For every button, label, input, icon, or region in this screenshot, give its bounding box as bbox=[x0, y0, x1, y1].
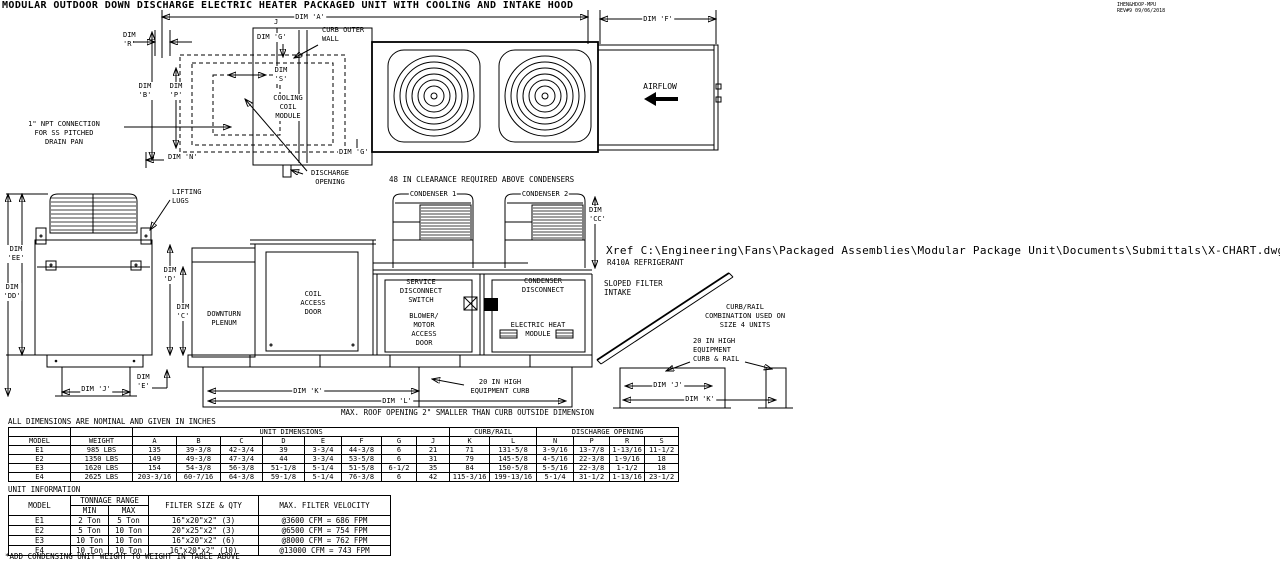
label-dim-n: DIM 'N' bbox=[167, 153, 199, 162]
label-curb-outer-wall: CURB OUTER WALL bbox=[322, 26, 364, 44]
airflow-arrow-icon bbox=[644, 92, 678, 106]
column-header: L bbox=[490, 437, 537, 446]
column-header: D bbox=[263, 437, 305, 446]
label-npt-note: 1" NPT CONNECTION FOR SS PITCHED DRAIN P… bbox=[28, 120, 100, 147]
table-cell: 53-5/8 bbox=[342, 455, 382, 464]
column-header: P bbox=[574, 437, 610, 446]
table-cell: E3 bbox=[9, 464, 71, 473]
table-cell: 21 bbox=[417, 446, 450, 455]
table-row: E31620 LBS15454-3/856-3/851-1/85-1/451-5… bbox=[9, 464, 679, 473]
table-cell: 1-9/16 bbox=[610, 455, 645, 464]
column-header: R bbox=[610, 437, 645, 446]
label-dim-p: DIM 'P' bbox=[169, 82, 184, 100]
column-header: J bbox=[417, 437, 450, 446]
header-filter: FILTER SIZE & QTY bbox=[149, 496, 259, 516]
table-row: E1985 LBS13539-3/842-3/4393-3/444-3/8621… bbox=[9, 446, 679, 455]
label-dim-f: DIM 'F' bbox=[642, 15, 674, 24]
table-cell: 76-3/8 bbox=[342, 473, 382, 482]
table-cell: 31 bbox=[417, 455, 450, 464]
label-dim-g-bottom: DIM 'G' bbox=[338, 148, 370, 157]
label-cooling-coil-module: COOLING COIL MODULE bbox=[272, 94, 304, 121]
label-dim-d: DIM 'D' bbox=[163, 266, 178, 284]
table-cell: 71 bbox=[450, 446, 490, 455]
label-equipment-curb: 20 IN HIGH EQUIPMENT CURB bbox=[470, 378, 529, 396]
table-cell: 154 bbox=[133, 464, 177, 473]
table-cell: 51-5/8 bbox=[342, 464, 382, 473]
group-unit-dimensions: UNIT DIMENSIONS bbox=[133, 428, 450, 437]
column-header: F bbox=[342, 437, 382, 446]
table-cell: 150-5/8 bbox=[490, 464, 537, 473]
label-dim-j-left: DIM 'J' bbox=[80, 385, 112, 394]
table-cell: 10 Ton bbox=[109, 526, 149, 536]
label-dim-j-detail: DIM 'J' bbox=[652, 381, 684, 390]
column-header: K bbox=[450, 437, 490, 446]
condenser-fan-icon bbox=[499, 50, 591, 142]
table-cell: E3 bbox=[9, 536, 71, 546]
table-cell: 5-5/16 bbox=[537, 464, 574, 473]
label-discharge-opening: DISCHARGE OPENING bbox=[311, 169, 349, 187]
doc-revision: REV#9 09/06/2018 bbox=[1117, 9, 1165, 15]
label-dim-ee: DIM 'EE' bbox=[7, 245, 26, 263]
table-cell: 39-3/8 bbox=[177, 446, 221, 455]
table-cell: 51-1/8 bbox=[263, 464, 305, 473]
label-dim-e-left: DIM 'E' bbox=[136, 373, 151, 391]
table-cell: 18 bbox=[645, 455, 679, 464]
column-header: S bbox=[645, 437, 679, 446]
table-cell: 2625 LBS bbox=[71, 473, 133, 482]
label-j-ref: J bbox=[274, 18, 278, 27]
table-cell: E1 bbox=[9, 516, 71, 526]
label-dim-r: DIM 'R' bbox=[123, 31, 136, 49]
table-cell: 135 bbox=[133, 446, 177, 455]
table-cell: 1-13/16 bbox=[610, 473, 645, 482]
dimensions-table: UNIT DIMENSIONS CURB/RAIL DISCHARGE OPEN… bbox=[8, 427, 679, 482]
table-cell: 47-3/4 bbox=[221, 455, 263, 464]
label-sloped-filter: SLOPED FILTER INTAKE bbox=[604, 279, 663, 298]
end-view bbox=[6, 194, 183, 396]
label-condenser-disconnect: CONDENSER DISCONNECT bbox=[522, 277, 564, 295]
table-row: E310 Ton10 Ton16"x20"x2" (6)@8000 CFM = … bbox=[9, 536, 391, 546]
label-dim-l: DIM 'L' bbox=[381, 397, 413, 406]
table-cell: 64-3/8 bbox=[221, 473, 263, 482]
label-dim-cc: DIM 'CC' bbox=[588, 206, 607, 224]
table-cell: @8000 CFM = 762 FPM bbox=[259, 536, 391, 546]
column-header: MODEL bbox=[9, 437, 71, 446]
header-max: MAX bbox=[109, 506, 149, 516]
table-cell: @6500 CFM = 754 FPM bbox=[259, 526, 391, 536]
label-curb-rail: 20 IN HIGH EQUIPMENT CURB & RAIL bbox=[693, 337, 739, 364]
table-cell: 3-9/16 bbox=[537, 446, 574, 455]
unit-info-title: UNIT INFORMATION bbox=[8, 485, 80, 494]
header-model: MODEL bbox=[9, 496, 71, 516]
table-cell: 3-3/4 bbox=[305, 455, 342, 464]
table-row: E12 Ton5 Ton16"x20"x2" (3)@3600 CFM = 68… bbox=[9, 516, 391, 526]
label-lifting-lugs: LIFTING LUGS bbox=[172, 188, 202, 206]
column-header: N bbox=[537, 437, 574, 446]
drawing-title: MODULAR OUTDOOR DOWN DISCHARGE ELECTRIC … bbox=[2, 0, 573, 13]
table-cell: E1 bbox=[9, 446, 71, 455]
table-cell: 11-1/2 bbox=[645, 446, 679, 455]
column-header-row: MODELWEIGHTABCDEFGJKLNPRS bbox=[9, 437, 679, 446]
group-header-row: UNIT DIMENSIONS CURB/RAIL DISCHARGE OPEN… bbox=[9, 428, 679, 437]
table-cell: 54-3/8 bbox=[177, 464, 221, 473]
table-cell: @3600 CFM = 686 FPM bbox=[259, 516, 391, 526]
table-cell: 5 Ton bbox=[71, 526, 109, 536]
label-blower-motor-door: BLOWER/ MOTOR ACCESS DOOR bbox=[409, 312, 439, 348]
label-coil-access-door: COIL ACCESS DOOR bbox=[300, 290, 325, 317]
label-condenser-1: CONDENSER 1 bbox=[409, 190, 457, 199]
table-cell: 79 bbox=[450, 455, 490, 464]
table-cell: 5-1/4 bbox=[305, 464, 342, 473]
table-cell: 16"x20"x2" (3) bbox=[149, 516, 259, 526]
table-cell: E4 bbox=[9, 473, 71, 482]
column-header: C bbox=[221, 437, 263, 446]
group-curb-rail: CURB/RAIL bbox=[450, 428, 537, 437]
unit-info-table: MODEL TONNAGE RANGE FILTER SIZE & QTY MA… bbox=[8, 495, 391, 556]
table-cell: E2 bbox=[9, 526, 71, 536]
table-cell: 49-3/8 bbox=[177, 455, 221, 464]
header-velocity: MAX. FILTER VELOCITY bbox=[259, 496, 391, 516]
xref-path: Xref C:\Engineering\Fans\Packaged Assemb… bbox=[606, 244, 1280, 258]
column-header: G bbox=[382, 437, 417, 446]
footnote: *ADD CONDENSING UNIT WEIGHT TO WEIGHT IN… bbox=[5, 552, 240, 561]
label-dim-dd: DIM 'DD' bbox=[3, 283, 22, 301]
table-cell: 39 bbox=[263, 446, 305, 455]
side-elevation bbox=[188, 194, 733, 407]
column-header: E bbox=[305, 437, 342, 446]
label-dim-a: DIM 'A' bbox=[294, 13, 326, 22]
plan-view bbox=[124, 10, 721, 177]
table-cell: 42 bbox=[417, 473, 450, 482]
table-cell: 985 LBS bbox=[71, 446, 133, 455]
table-cell: 59-1/8 bbox=[263, 473, 305, 482]
label-roof-note: MAX. ROOF OPENING 2" SMALLER THAN CURB O… bbox=[341, 408, 594, 417]
table-cell: 3-3/4 bbox=[305, 446, 342, 455]
table-cell: 56-3/8 bbox=[221, 464, 263, 473]
table-cell: 18 bbox=[645, 464, 679, 473]
table-cell: 131-5/8 bbox=[490, 446, 537, 455]
label-dim-s: DIM 'S' bbox=[274, 66, 289, 84]
table-cell: 23-1/2 bbox=[645, 473, 679, 482]
table-cell: 6 bbox=[382, 455, 417, 464]
table-cell: 199-13/16 bbox=[490, 473, 537, 482]
table-cell: 22-3/8 bbox=[574, 455, 610, 464]
label-refrigerant: R410A REFRIGERANT bbox=[607, 258, 684, 267]
table-cell: 44-3/8 bbox=[342, 446, 382, 455]
column-header: A bbox=[133, 437, 177, 446]
condenser-1-coil bbox=[393, 194, 473, 268]
table-cell: 1350 LBS bbox=[71, 455, 133, 464]
table-cell: 6 bbox=[382, 473, 417, 482]
header-tonnage-range: TONNAGE RANGE bbox=[71, 496, 149, 506]
blank-cell bbox=[71, 428, 133, 437]
label-clearance-note: 48 IN CLEARANCE REQUIRED ABOVE CONDENSER… bbox=[389, 175, 574, 184]
table-cell: 20"x25"x2" (3) bbox=[149, 526, 259, 536]
label-downturn-plenum: DOWNTURN PLENUM bbox=[207, 310, 241, 328]
table-cell: 203-3/16 bbox=[133, 473, 177, 482]
unit-info-header-row: MODEL TONNAGE RANGE FILTER SIZE & QTY MA… bbox=[9, 496, 391, 506]
table-cell: 5 Ton bbox=[109, 516, 149, 526]
table-cell: 145-5/8 bbox=[490, 455, 537, 464]
table-cell: 31-1/2 bbox=[574, 473, 610, 482]
table-cell: 10 Ton bbox=[109, 536, 149, 546]
condenser-2-coil bbox=[505, 194, 585, 268]
table-cell: 1620 LBS bbox=[71, 464, 133, 473]
drawing-sheet: MODULAR OUTDOOR DOWN DISCHARGE ELECTRIC … bbox=[0, 0, 1280, 563]
table-cell: 10 Ton bbox=[71, 536, 109, 546]
label-electric-heat: ELECTRIC HEAT MODULE bbox=[511, 321, 566, 339]
table-cell: 60-7/16 bbox=[177, 473, 221, 482]
label-condenser-2: CONDENSER 2 bbox=[521, 190, 569, 199]
table-cell: 22-3/8 bbox=[574, 464, 610, 473]
label-dim-k-detail: DIM 'K' bbox=[684, 395, 716, 404]
table-cell: @13000 CFM = 743 FPM bbox=[259, 546, 391, 556]
column-header: WEIGHT bbox=[71, 437, 133, 446]
table-row: E25 Ton10 Ton20"x25"x2" (3)@6500 CFM = 7… bbox=[9, 526, 391, 536]
label-dim-k-main: DIM 'K' bbox=[292, 387, 324, 396]
column-header: B bbox=[177, 437, 221, 446]
table-cell: 5-1/4 bbox=[537, 473, 574, 482]
group-discharge-opening: DISCHARGE OPENING bbox=[537, 428, 679, 437]
table-row: E42625 LBS203-3/1660-7/1664-3/859-1/85-1… bbox=[9, 473, 679, 482]
table-cell: 115-3/16 bbox=[450, 473, 490, 482]
table-cell: 16"x20"x2" (6) bbox=[149, 536, 259, 546]
table-cell: 5-1/4 bbox=[305, 473, 342, 482]
dimensions-table-title: ALL DIMENSIONS ARE NOMINAL AND GIVEN IN … bbox=[8, 417, 216, 426]
table-cell: 84 bbox=[450, 464, 490, 473]
label-service-disconnect: SERVICE DISCONNECT SWITCH bbox=[400, 278, 442, 305]
condenser-fan-icon bbox=[388, 50, 480, 142]
table-cell: 1-1/2 bbox=[610, 464, 645, 473]
table-cell: E2 bbox=[9, 455, 71, 464]
table-cell: 149 bbox=[133, 455, 177, 464]
table-cell: 4-5/16 bbox=[537, 455, 574, 464]
table-row: E21350 LBS14949-3/847-3/4443-3/453-5/863… bbox=[9, 455, 679, 464]
label-dim-b: DIM 'B' bbox=[138, 82, 153, 100]
header-min: MIN bbox=[71, 506, 109, 516]
table-cell: 6-1/2 bbox=[382, 464, 417, 473]
condenser-disconnect-box bbox=[484, 298, 498, 311]
blank-cell bbox=[9, 428, 71, 437]
table-cell: 13-7/8 bbox=[574, 446, 610, 455]
table-cell: 6 bbox=[382, 446, 417, 455]
table-cell: 1-13/16 bbox=[610, 446, 645, 455]
label-dim-g-top: DIM 'G' bbox=[256, 33, 288, 42]
table-cell: 35 bbox=[417, 464, 450, 473]
table-cell: 42-3/4 bbox=[221, 446, 263, 455]
table-cell: 44 bbox=[263, 455, 305, 464]
label-curb-rail-note: CURB/RAIL COMBINATION USED ON SIZE 4 UNI… bbox=[705, 303, 785, 330]
label-dim-c: DIM 'C' bbox=[176, 303, 191, 321]
table-cell: 2 Ton bbox=[71, 516, 109, 526]
label-airflow: AIRFLOW bbox=[643, 82, 677, 92]
